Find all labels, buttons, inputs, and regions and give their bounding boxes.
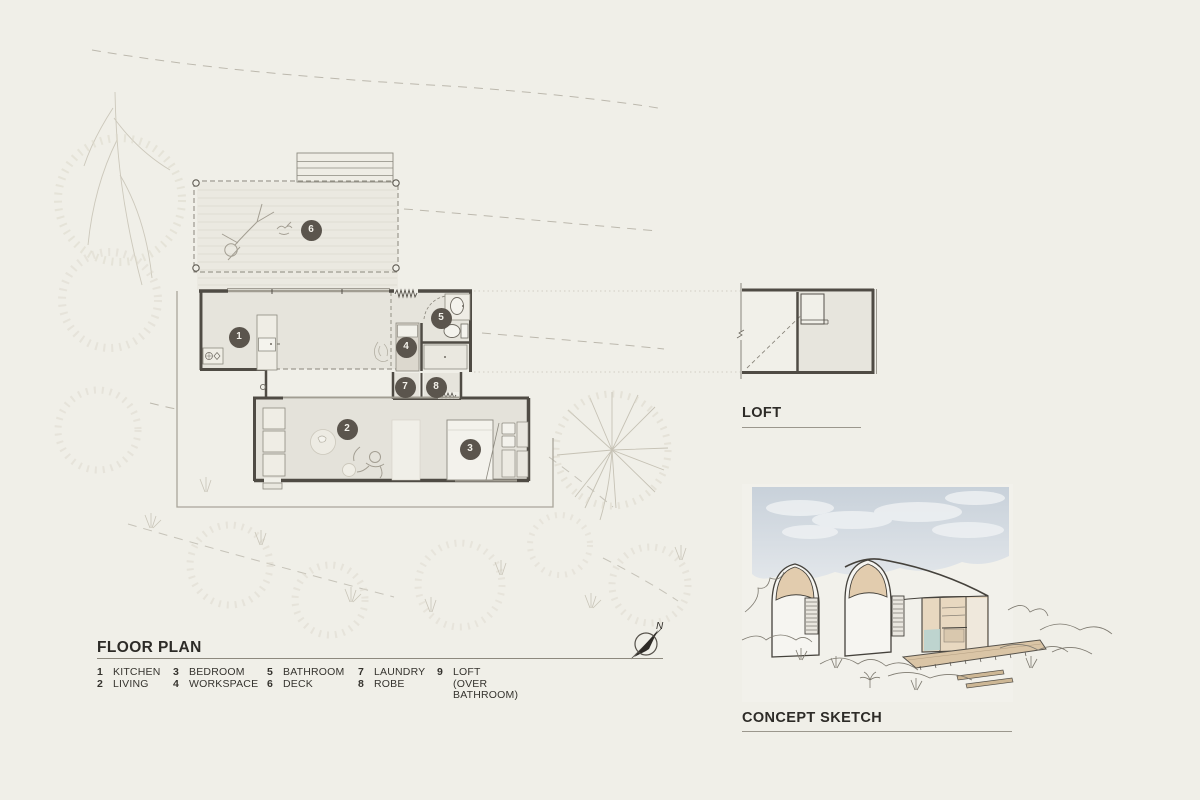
legend-item: 5 BATHROOM	[267, 667, 358, 679]
legend-column: 3 BEDROOM 4 WORKSPACE	[173, 667, 267, 702]
legend-column: 9 LOFT (OVER BATHROOM)	[437, 667, 523, 702]
north-arrow: N	[631, 621, 664, 659]
legend-column: 5 BATHROOM 6 DECK	[267, 667, 358, 702]
architectural-sheet: N	[0, 0, 1200, 800]
deck-plan	[193, 153, 399, 290]
kitchen-sink-stove	[203, 348, 223, 364]
room-marker-living: 2	[337, 419, 358, 440]
floor-plan-legend: 1 KITCHEN 2 LIVING 3 BEDROOM 4 WORKSPACE…	[97, 667, 523, 702]
entry-step	[263, 483, 282, 489]
floor-plan-title: FLOOR PLAN	[97, 639, 202, 657]
living-shelves	[263, 408, 285, 476]
loft-hatch-opening	[801, 294, 824, 324]
concept-sketch-drawing	[742, 484, 1112, 702]
loft-reference-lines	[474, 291, 740, 372]
stool	[343, 464, 356, 477]
legend-item: 8 ROBE	[358, 679, 437, 691]
loft-plan-title-rule	[742, 427, 861, 428]
room-marker-bedroom: 3	[460, 439, 481, 460]
floor-plan-title-rule	[97, 658, 663, 659]
north-label: N	[656, 621, 664, 632]
loft-plan-title: LOFT	[742, 405, 781, 421]
legend-item: 1 KITCHEN	[97, 667, 173, 679]
section-break-symbol	[737, 330, 744, 338]
glass-reflection	[924, 629, 940, 651]
kitchen-island	[257, 315, 280, 370]
louver-window-near	[892, 596, 904, 636]
legend-item: 7 LAUNDRY	[358, 667, 437, 679]
room-marker-kitchen: 1	[229, 327, 250, 348]
room-marker-bathroom: 5	[431, 308, 452, 329]
concept-sketch-title-rule	[742, 731, 1012, 732]
wardrobe-divider	[392, 420, 420, 480]
legend-item: 6 DECK	[267, 679, 358, 691]
legend-column: 1 KITCHEN 2 LIVING	[97, 667, 173, 702]
louver-window-far	[805, 598, 818, 634]
concept-sketch-title: CONCEPT SKETCH	[742, 710, 882, 726]
loft-plan	[737, 283, 877, 379]
legend-item: 9 LOFT (OVER BATHROOM)	[437, 667, 523, 702]
room-marker-laundry: 7	[395, 377, 416, 398]
room-marker-workspace: 4	[396, 337, 417, 358]
legend-item: 2 LIVING	[97, 679, 173, 691]
legend-item: 3 BEDROOM	[173, 667, 267, 679]
room-marker-deck: 6	[301, 220, 322, 241]
deck-steps	[297, 153, 393, 182]
room-marker-robe: 8	[426, 377, 447, 398]
legend-column: 7 LAUNDRY 8 ROBE	[358, 667, 437, 702]
main-floor-plan	[199, 288, 529, 489]
legend-item: 4 WORKSPACE	[173, 679, 267, 691]
glazed-end	[922, 596, 988, 652]
